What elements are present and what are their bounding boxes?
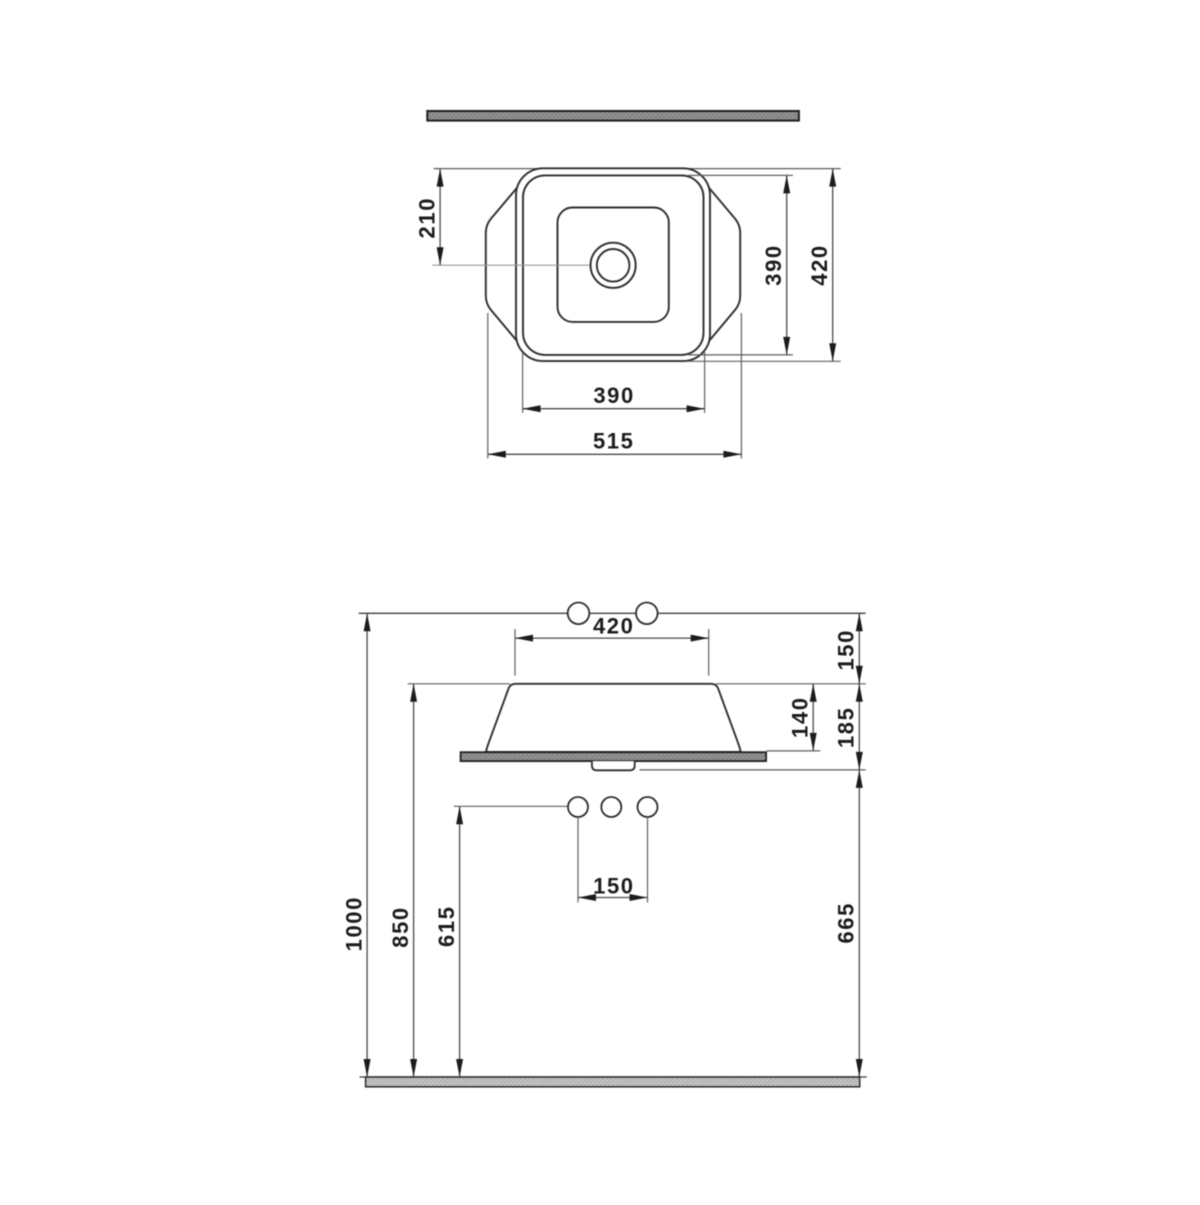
svg-text:140: 140 bbox=[788, 696, 813, 738]
svg-text:185: 185 bbox=[834, 707, 859, 749]
svg-text:1000: 1000 bbox=[342, 896, 367, 951]
svg-text:665: 665 bbox=[834, 902, 859, 944]
svg-text:850: 850 bbox=[388, 906, 413, 948]
svg-text:420: 420 bbox=[593, 614, 635, 639]
svg-text:210: 210 bbox=[414, 197, 439, 239]
svg-text:390: 390 bbox=[593, 383, 635, 408]
svg-text:615: 615 bbox=[434, 905, 459, 947]
svg-text:515: 515 bbox=[593, 428, 635, 453]
svg-text:390: 390 bbox=[761, 244, 786, 286]
svg-text:150: 150 bbox=[834, 629, 859, 671]
svg-text:420: 420 bbox=[807, 244, 832, 286]
svg-text:150: 150 bbox=[593, 873, 635, 898]
